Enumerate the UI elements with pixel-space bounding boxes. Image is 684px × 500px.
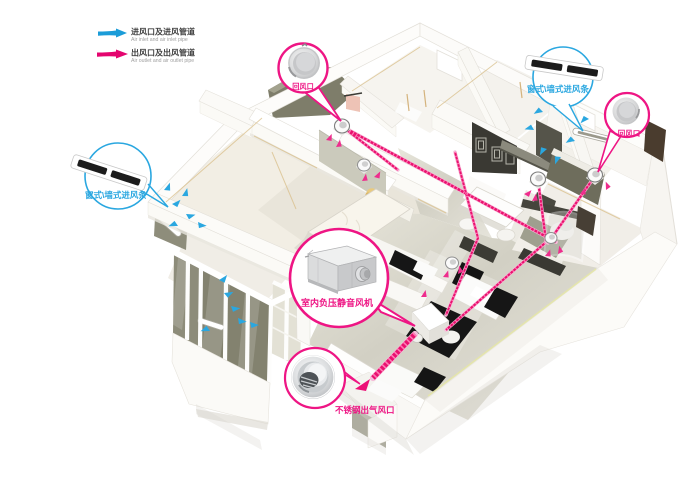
svg-text:不锈钢出气风口: 不锈钢出气风口 xyxy=(335,405,395,415)
svg-text:进风口及进风管道: 进风口及进风管道 xyxy=(131,27,195,37)
svg-text:回风口: 回风口 xyxy=(618,129,641,138)
svg-text:回风口: 回风口 xyxy=(292,82,314,91)
svg-text:出风口及出风管道: 出风口及出风管道 xyxy=(131,48,195,58)
svg-text:Air outlet and air outlet pipe: Air outlet and air outlet pipe xyxy=(131,58,194,64)
svg-text:室内负压静音风机: 室内负压静音风机 xyxy=(301,297,373,308)
svg-text:Air inlet and air inlet pipe: Air inlet and air inlet pipe xyxy=(131,37,188,43)
svg-text:窗式\墙式进风条: 窗式\墙式进风条 xyxy=(527,84,589,94)
svg-text:窗式\墙式进风条: 窗式\墙式进风条 xyxy=(85,190,147,200)
